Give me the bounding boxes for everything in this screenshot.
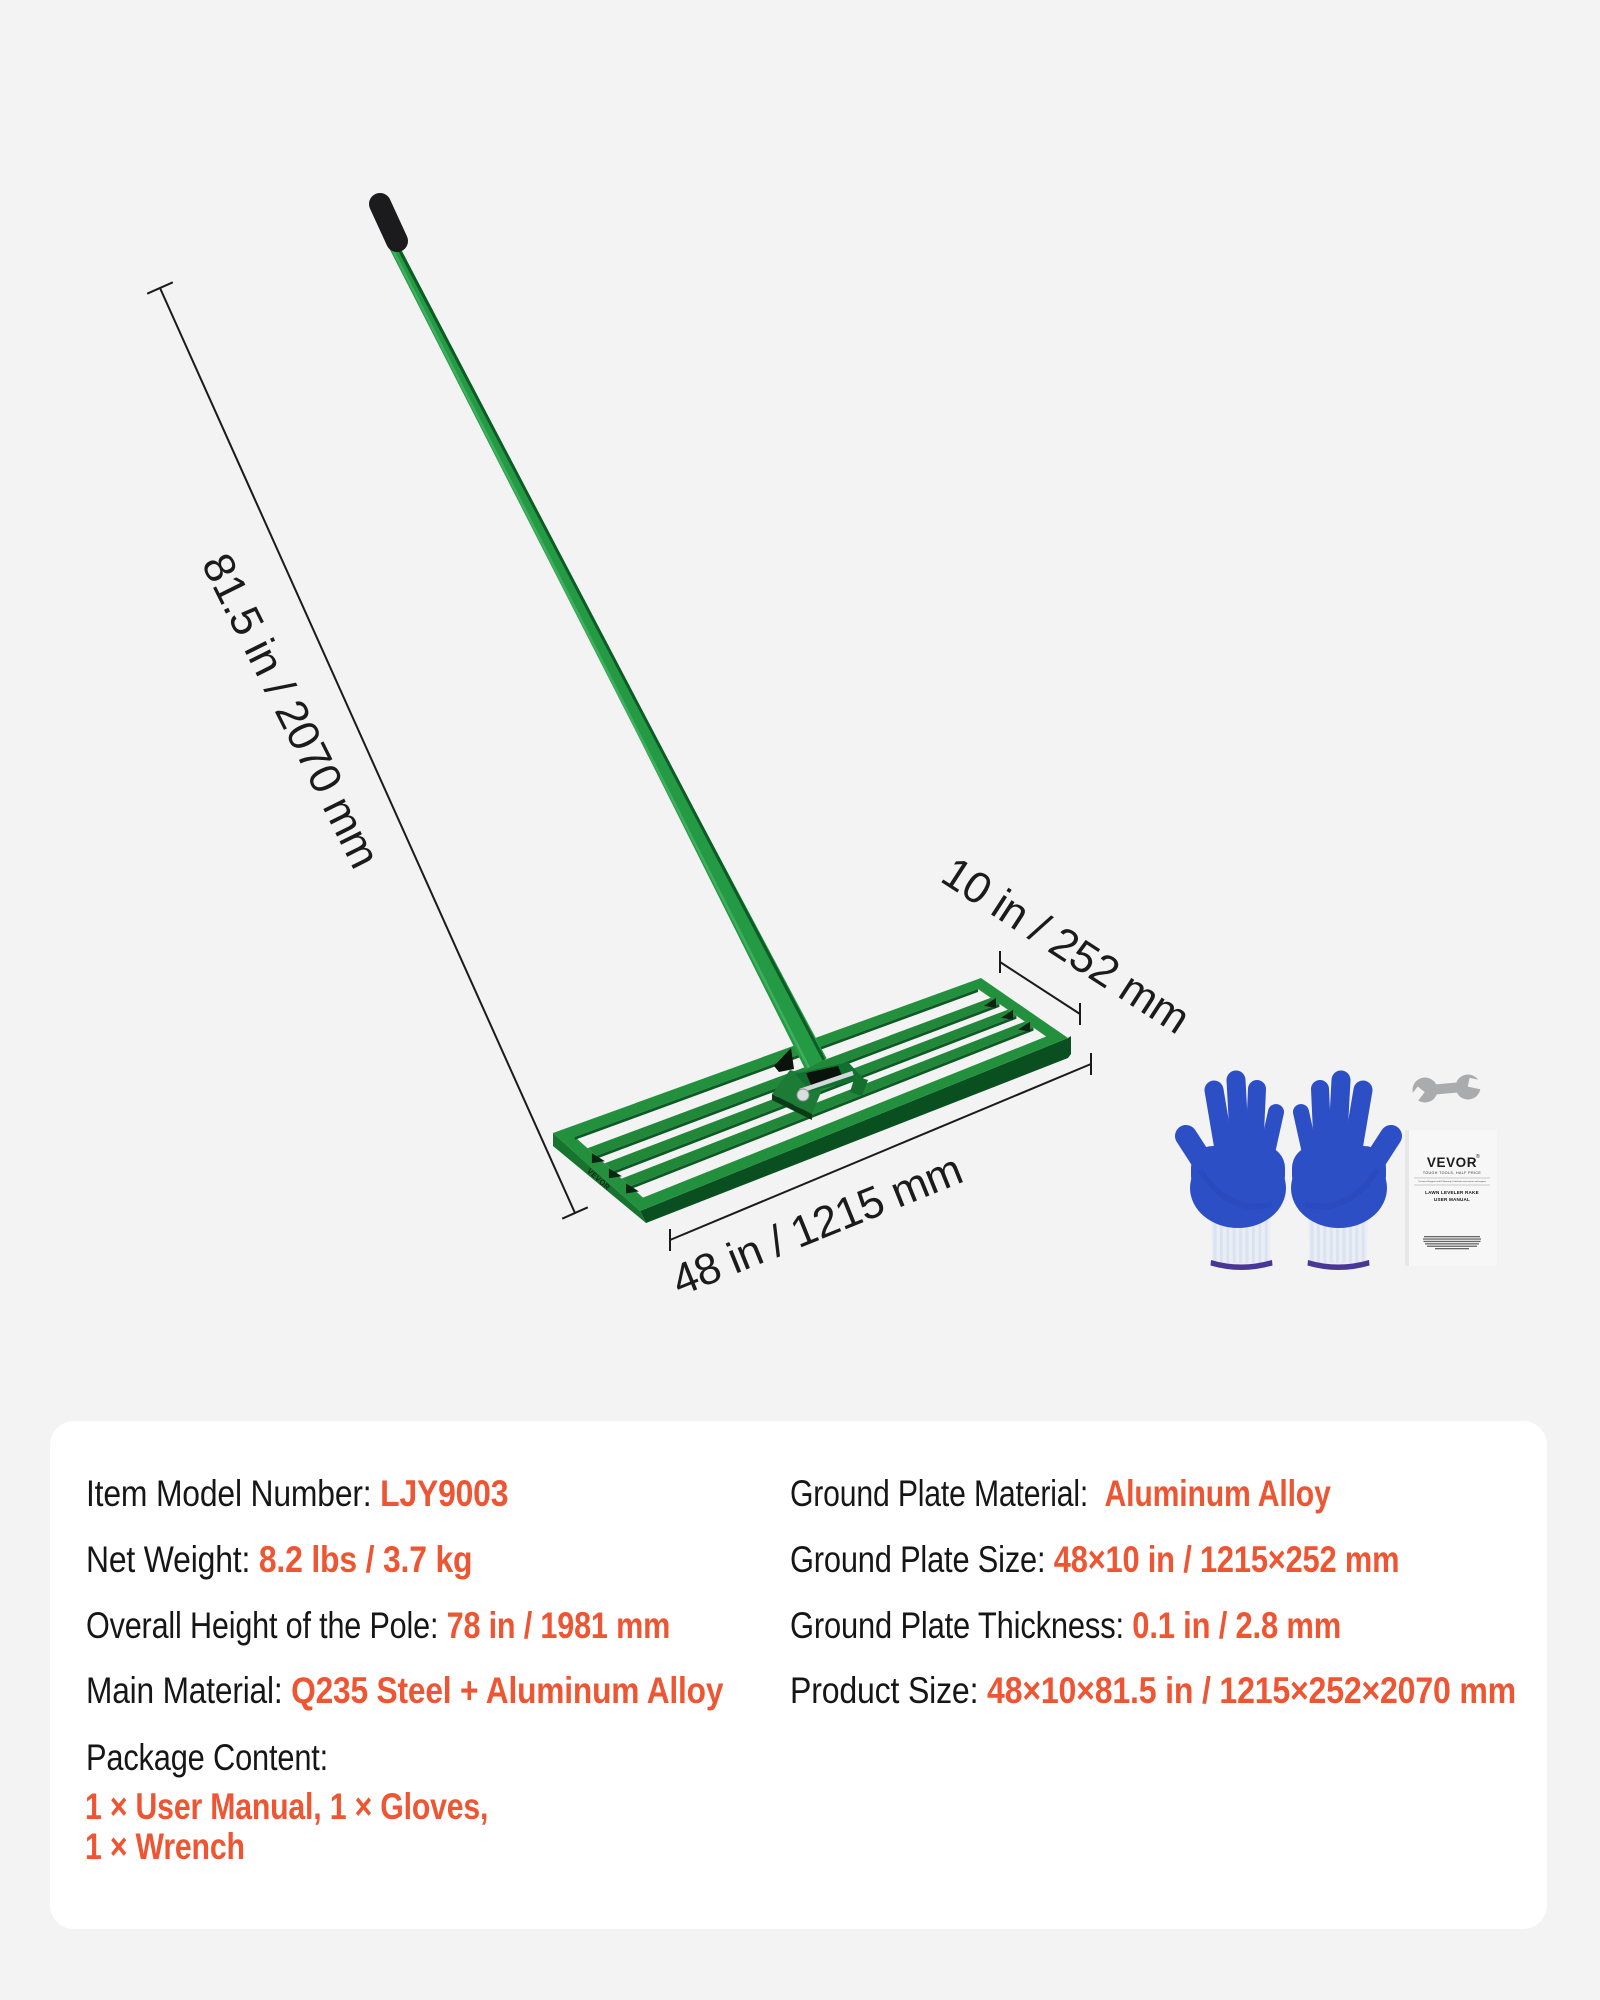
svg-text:Technical Support and E-Warran: Technical Support and E-Warranty Certifi… [1418, 1180, 1486, 1183]
svg-text:VEVOR: VEVOR [1427, 1155, 1477, 1170]
svg-text:48 in / 1215 mm: 48 in / 1215 mm [665, 1145, 969, 1306]
svg-text:LAWN LEVELER RAKE: LAWN LEVELER RAKE [1425, 1190, 1479, 1195]
svg-text:®: ® [1476, 1153, 1480, 1160]
svg-text:USER MANUAL: USER MANUAL [1434, 1197, 1470, 1202]
svg-text:81.5 in / 2070 mm: 81.5 in / 2070 mm [192, 546, 389, 875]
svg-text:TOUGH TOOLS, HALF PRICE: TOUGH TOOLS, HALF PRICE [1423, 1171, 1482, 1175]
